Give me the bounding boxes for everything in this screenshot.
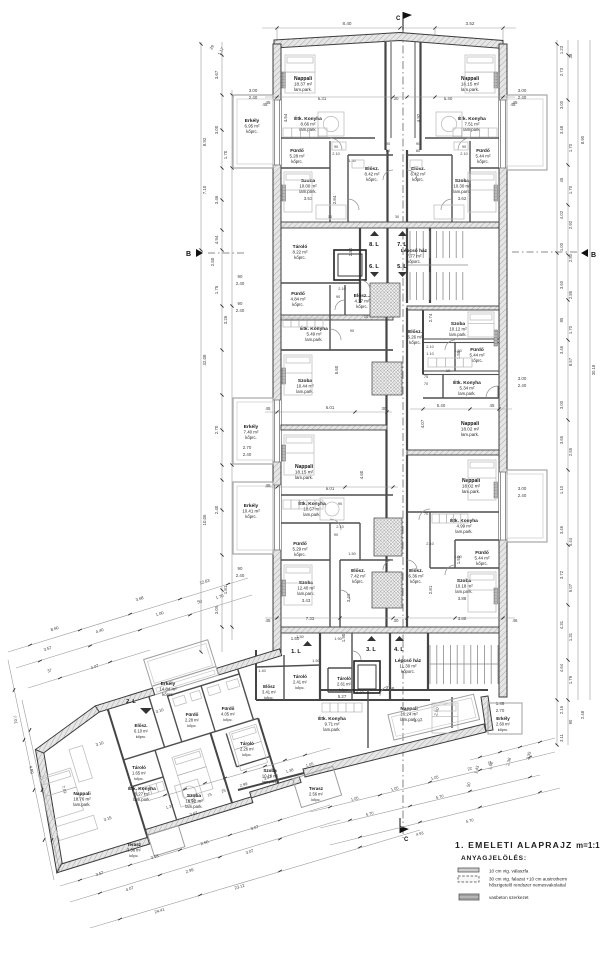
svg-text:10.30 m²: 10.30 m² [453,184,471,189]
svg-text:lam.park.: lam.park. [461,432,479,437]
svg-text:Tároló: Tároló [240,741,254,746]
svg-text:2.40: 2.40 [243,452,252,457]
svg-text:5.60: 5.60 [334,365,339,374]
svg-text:5.27: 5.27 [338,694,347,699]
svg-text:3.72: 3.72 [559,570,564,579]
svg-text:8.42 m²: 8.42 m² [365,172,380,177]
svg-text:1.70: 1.70 [568,325,573,334]
svg-text:lam.park.: lam.park. [133,797,150,802]
svg-text:1.70: 1.70 [568,143,573,152]
svg-text:1.70: 1.70 [223,150,228,159]
svg-text:2.40: 2.40 [236,308,245,313]
svg-text:8.40: 8.40 [343,21,352,26]
svg-text:kőporc.: kőporc. [401,669,415,674]
svg-text:6.10 m²: 6.10 m² [134,729,149,734]
svg-text:18.76 m²: 18.76 m² [73,797,91,802]
svg-text:7. L: 7. L [397,242,407,248]
svg-text:12.40 m²: 12.40 m² [297,586,315,591]
svg-text:2.10: 2.10 [426,541,434,546]
svg-text:45: 45 [513,100,518,105]
svg-text:kőprc.: kőprc. [245,514,256,519]
svg-text:45: 45 [266,618,271,623]
svg-text:45: 45 [266,100,271,105]
svg-text:kőprc.: kőprc. [294,255,305,260]
svg-text:lam.park.: lam.park. [303,512,320,517]
svg-text:2.10: 2.10 [460,151,468,156]
svg-text:2.92: 2.92 [568,220,573,229]
svg-text:3.00: 3.00 [518,88,527,93]
svg-text:Szoba: Szoba [263,768,277,773]
svg-text:8.66 m²: 8.66 m² [301,122,316,127]
svg-text:2.16: 2.16 [559,705,564,714]
svg-text:5.28 m²: 5.28 m² [290,154,305,159]
svg-text:7.33: 7.33 [306,616,315,621]
svg-text:7.40 m²: 7.40 m² [244,430,259,435]
svg-text:2.26 m²: 2.26 m² [240,747,255,752]
svg-text:5.40: 5.40 [437,403,446,408]
svg-text:45: 45 [266,406,271,411]
svg-text:2.28 m²: 2.28 m² [185,718,200,723]
svg-text:lam.park.: lam.park. [461,87,479,92]
svg-text:kőprc.: kőprc. [366,177,377,182]
svg-text:3.00: 3.00 [214,125,219,134]
svg-text:3.67: 3.67 [214,70,219,79]
svg-text:2.40: 2.40 [518,493,527,498]
svg-text:1.90: 1.90 [334,636,342,641]
svg-text:3. L: 3. L [366,647,376,653]
svg-text:1.00: 1.00 [559,242,564,251]
svg-text:1.31: 1.31 [568,632,573,641]
svg-text:11.30 m²: 11.30 m² [399,664,417,669]
svg-text:3.58 m²: 3.58 m² [127,848,142,853]
svg-text:3.26: 3.26 [223,315,228,324]
svg-text:2.40: 2.40 [236,573,245,578]
svg-text:2.48: 2.48 [580,710,585,719]
svg-text:30: 30 [382,406,387,411]
svg-text:10.06: 10.06 [202,514,207,526]
svg-text:3.60: 3.60 [559,280,564,289]
svg-text:Fürdő: Fürdő [186,712,199,717]
svg-text:1.10: 1.10 [426,351,434,356]
svg-text:kőprc.: kőprc. [294,552,305,557]
svg-text:85: 85 [559,317,564,322]
svg-text:18.15 m²: 18.15 m² [295,470,314,475]
svg-text:1.40: 1.40 [258,668,266,673]
svg-text:3.88: 3.88 [458,616,467,621]
svg-text:4.05 m²: 4.05 m² [221,712,236,717]
svg-text:3.11: 3.11 [559,733,564,742]
svg-text:3.43: 3.43 [302,598,311,603]
svg-text:1. EMELETI ALAPRAJZ m=1:100: 1. EMELETI ALAPRAJZ m=1:100 [455,840,600,850]
svg-text:lam.park.: lam.park. [73,802,90,807]
svg-text:7.42 m²: 7.42 m² [351,574,366,579]
svg-text:45: 45 [559,177,564,182]
svg-text:2.56 m²: 2.56 m² [309,792,324,797]
svg-text:6.01: 6.01 [326,405,335,410]
svg-text:7.10: 7.10 [202,185,207,194]
svg-text:2.40: 2.40 [236,281,245,286]
svg-text:90: 90 [238,274,243,279]
svg-text:2.55: 2.55 [568,447,573,456]
svg-text:Terasz: Terasz [127,842,142,847]
svg-text:3.00: 3.00 [518,486,527,491]
svg-text:1.10: 1.10 [559,485,564,494]
svg-text:5.44: 5.44 [568,537,573,546]
svg-text:6.42 m²: 6.42 m² [411,172,426,177]
svg-text:2.10: 2.10 [426,344,434,349]
svg-text:5.44 m²: 5.44 m² [475,556,490,561]
svg-text:kőprc.: kőprc. [162,692,173,697]
svg-text:lam.park.: lam.park. [185,804,202,809]
svg-text:kőprc.: kőprc. [409,340,420,345]
svg-text:8.90: 8.90 [580,135,585,144]
svg-text:3.00: 3.00 [559,100,564,109]
svg-text:kőpc.: kőpc. [223,717,232,722]
svg-text:2.10: 2.10 [332,151,340,156]
svg-text:2.50: 2.50 [210,257,215,266]
svg-text:B: B [186,251,191,258]
svg-text:5.29 m²: 5.29 m² [293,547,308,552]
svg-text:6.36 m²: 6.36 m² [409,574,424,579]
svg-text:6.26 m²: 6.26 m² [408,335,423,340]
svg-text:2.41 m²: 2.41 m² [293,680,308,685]
svg-text:5. L: 5. L [397,264,407,270]
svg-text:2.60 m²: 2.60 m² [496,722,511,727]
svg-text:3.46: 3.46 [559,345,564,354]
svg-text:1.50: 1.50 [348,551,356,556]
svg-text:C: C [404,837,409,843]
svg-text:B: B [591,252,596,259]
svg-text:4. L: 4. L [394,647,404,653]
svg-text:2.40: 2.40 [249,95,258,100]
svg-text:2.10: 2.10 [338,286,346,291]
svg-text:kőpc.: kőpc. [311,797,320,802]
svg-text:6. L: 6. L [369,264,379,270]
svg-text:18.02 m²: 18.02 m² [462,484,481,489]
svg-text:hőszigetelő rendszer nemesvako: hőszigetelő rendszer nemesvakolattal [489,883,566,888]
svg-text:kőprc.: kőprc. [412,177,423,182]
svg-text:kőprc.: kőprc. [410,579,421,584]
svg-text:3.62: 3.62 [458,196,467,201]
svg-text:4.31: 4.31 [559,620,564,629]
svg-text:3.88: 3.88 [458,596,467,601]
svg-text:kőprc.: kőprc. [477,159,488,164]
svg-text:3.53: 3.53 [304,196,313,201]
svg-text:1.50: 1.50 [312,658,320,663]
svg-text:90: 90 [238,301,243,306]
svg-text:kőprc.: kőprc. [136,734,147,739]
svg-text:kőprc.: kőprc. [245,435,256,440]
svg-text:kőprc.: kőprc. [352,579,363,584]
svg-text:2.84: 2.84 [332,195,337,204]
svg-text:kőprc.: kőprc. [476,561,487,566]
svg-text:8.22 m²: 8.22 m² [293,250,308,255]
svg-text:45: 45 [490,403,495,408]
svg-text:8.92: 8.92 [202,137,207,146]
svg-text:10.12 m²: 10.12 m² [449,327,467,332]
svg-text:18.02 m²: 18.02 m² [461,427,480,432]
svg-text:7.77 m²: 7.77 m² [407,254,422,259]
svg-text:1.70: 1.70 [568,185,573,194]
svg-text:kőpc.: kőpc. [242,752,251,757]
svg-text:1.50: 1.50 [454,554,462,559]
svg-text:3.65: 3.65 [559,435,564,444]
svg-text:lam.park.: lam.park. [295,475,313,480]
svg-text:1.23: 1.23 [559,45,564,54]
svg-text:2.70: 2.70 [214,425,219,434]
svg-text:kőprc.: kőprc. [291,159,302,164]
svg-text:1.50: 1.50 [348,158,356,163]
svg-text:kőpc.: kőpc. [295,685,304,690]
svg-text:kőporc.: kőporc. [407,259,421,264]
svg-text:10.00 m²: 10.00 m² [299,184,317,189]
svg-text:3.41 m²: 3.41 m² [262,690,277,695]
svg-text:4.07: 4.07 [420,419,425,428]
svg-text:lam.park.: lam.park. [462,489,480,494]
svg-text:4.94: 4.94 [214,235,219,244]
svg-text:vasbeton szerkezet: vasbeton szerkezet [489,895,529,900]
svg-text:30: 30 [394,618,399,623]
svg-text:2.61 m²: 2.61 m² [337,682,352,687]
svg-text:1.81: 1.81 [223,585,228,594]
svg-text:3.48: 3.48 [559,125,564,134]
svg-text:8. L: 8. L [369,242,379,248]
svg-text:3.52: 3.52 [466,21,475,26]
svg-text:4.17 m²: 4.17 m² [355,299,370,304]
svg-text:10 cm vtg. válaszfa: 10 cm vtg. válaszfa [489,869,529,874]
svg-text:Tároló: Tároló [337,676,351,681]
svg-text:4.84 m²: 4.84 m² [291,297,306,302]
svg-text:18.15 m²: 18.15 m² [461,82,480,87]
svg-text:2.81: 2.81 [428,585,433,594]
svg-text:1.48: 1.48 [496,701,505,706]
svg-text:Elősz.: Elősz. [134,723,147,728]
svg-text:ANYAGJELÖLÉS:: ANYAGJELÖLÉS: [461,853,527,862]
svg-text:10.41 m²: 10.41 m² [242,509,260,514]
svg-text:1.75: 1.75 [214,285,219,294]
svg-text:18.37 m²: 18.37 m² [294,82,313,87]
svg-text:lam.park.: lam.park. [323,727,340,732]
svg-text:8.57: 8.57 [568,357,573,366]
svg-text:Tároló: Tároló [293,674,307,679]
svg-text:5.34 m²: 5.34 m² [460,386,475,391]
svg-text:kőpc.: kőpc. [264,695,273,700]
svg-text:5.49 m²: 5.49 m² [307,332,322,337]
svg-text:1.50: 1.50 [454,348,462,353]
svg-text:C: C [396,16,401,22]
svg-text:4.99 m²: 4.99 m² [457,524,472,529]
svg-text:kőprc.: kőprc. [246,129,257,134]
svg-text:9.71 m²: 9.71 m² [325,722,340,727]
svg-text:Fürdő: Fürdő [222,706,235,711]
svg-text:lam.park.: lam.park. [449,332,466,337]
svg-text:kőpc.: kőpc. [187,723,196,728]
svg-text:10.44 m²: 10.44 m² [296,384,314,389]
svg-text:2.74: 2.74 [428,313,433,322]
svg-text:kőprc.: kőprc. [498,727,509,732]
svg-text:kőpc.: kőpc. [129,853,138,858]
svg-text:kőpc.: kőpc. [134,776,143,781]
svg-text:2.73: 2.73 [559,67,564,76]
svg-text:14.84 m²: 14.84 m² [159,687,177,692]
svg-text:4.92: 4.92 [416,113,421,122]
svg-text:lam.park.: lam.park. [305,337,322,342]
svg-text:1.50: 1.50 [296,634,304,639]
svg-text:lam.park.: lam.park. [294,87,312,92]
svg-text:2.40: 2.40 [518,95,527,100]
svg-text:Erkély: Erkély [496,716,510,721]
svg-text:46: 46 [513,618,518,623]
svg-text:2.40: 2.40 [518,383,527,388]
svg-text:32.08: 32.08 [202,354,207,366]
svg-text:2.50: 2.50 [348,247,353,256]
svg-text:4.02: 4.02 [559,210,564,219]
svg-text:30.18: 30.18 [591,364,596,375]
svg-text:2. L: 2. L [126,699,136,705]
svg-text:2.50: 2.50 [568,253,573,262]
svg-text:7.51 m²: 7.51 m² [465,122,480,127]
svg-text:2.40: 2.40 [214,505,219,514]
svg-text:3.46: 3.46 [214,195,219,204]
svg-text:2.10: 2.10 [336,524,344,529]
svg-text:5.27: 5.27 [356,690,364,695]
svg-text:38: 38 [568,53,573,58]
svg-text:5.44 m²: 5.44 m² [476,154,491,159]
svg-text:3.00: 3.00 [559,400,564,409]
svg-text:4.54: 4.54 [283,113,288,122]
svg-text:4.60: 4.60 [359,470,364,479]
svg-text:6.07: 6.07 [568,583,573,592]
svg-text:3.46: 3.46 [559,525,564,534]
svg-text:2.70: 2.70 [243,445,252,450]
svg-text:30 cm vtg. falazat +10 cm aus: 30 cm vtg. falazat +10 cm austrotherm [489,877,567,882]
svg-text:4.64: 4.64 [559,663,564,672]
svg-text:3.00: 3.00 [518,376,527,381]
svg-text:90: 90 [568,719,573,724]
svg-text:lam.park.: lam.park. [458,391,475,396]
svg-text:3.00: 3.00 [249,88,258,93]
svg-text:lam.park.: lam.park. [455,529,472,534]
svg-text:2.85: 2.85 [568,290,573,299]
svg-text:1.79: 1.79 [568,675,573,684]
svg-text:5.44 m²: 5.44 m² [470,353,485,358]
svg-text:1. L: 1. L [291,649,301,655]
svg-text:Tároló: Tároló [132,765,146,770]
svg-text:2.70: 2.70 [496,708,505,713]
svg-text:lam.park.: lam.park. [296,389,313,394]
svg-text:1.65 m²: 1.65 m² [132,771,147,776]
svg-text:kőpc.: kőpc. [339,687,348,692]
svg-text:6.95 m²: 6.95 m² [245,124,260,129]
svg-text:Terasz: Terasz [309,786,324,791]
svg-text:75: 75 [424,374,428,379]
svg-text:90: 90 [238,566,243,571]
svg-text:10.18 m²: 10.18 m² [455,584,473,589]
svg-text:kőprc.: kőprc. [471,358,482,363]
svg-text:Elősz: Elősz [263,684,276,689]
svg-text:8.27 m²: 8.27 m² [135,792,150,797]
svg-text:kőprc.: kőprc. [292,302,303,307]
svg-text:kőprc.: kőprc. [356,304,367,309]
